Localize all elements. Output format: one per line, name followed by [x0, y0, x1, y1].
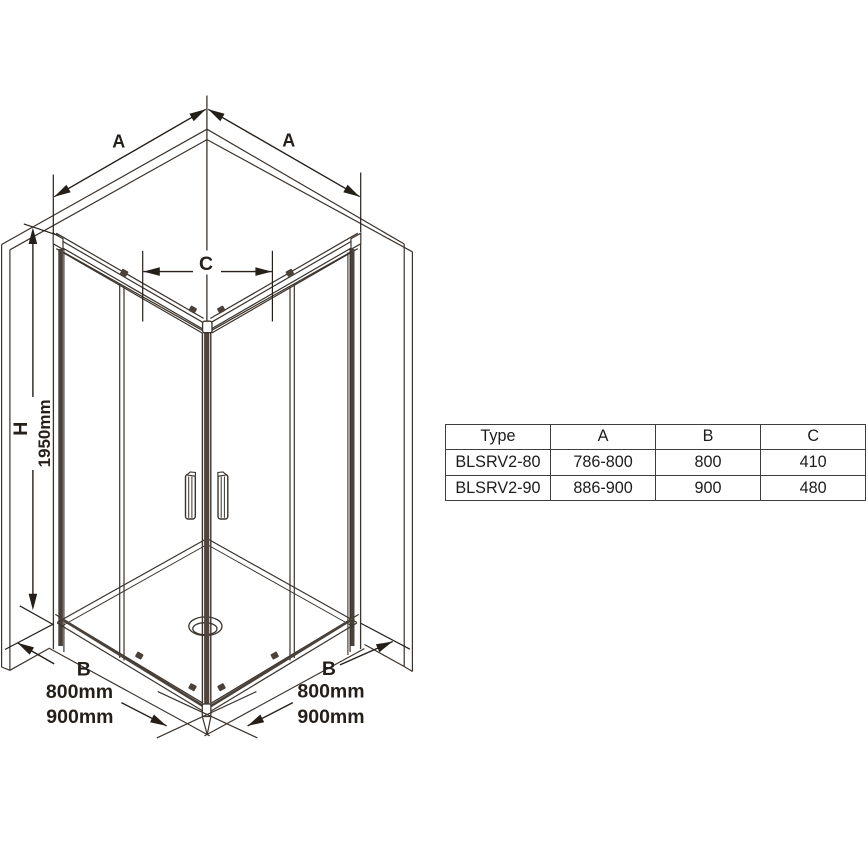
svg-text:900mm: 900mm	[297, 706, 364, 728]
svg-text:C: C	[199, 253, 213, 275]
svg-text:A: A	[112, 132, 125, 152]
svg-text:H: H	[10, 422, 32, 436]
svg-text:800mm: 800mm	[46, 681, 113, 703]
svg-text:1950mm: 1950mm	[35, 399, 54, 467]
svg-text:B: B	[322, 658, 336, 680]
svg-text:A: A	[282, 131, 295, 151]
svg-text:B: B	[77, 658, 91, 680]
svg-text:900mm: 900mm	[46, 706, 113, 728]
svg-text:800mm: 800mm	[297, 680, 364, 702]
